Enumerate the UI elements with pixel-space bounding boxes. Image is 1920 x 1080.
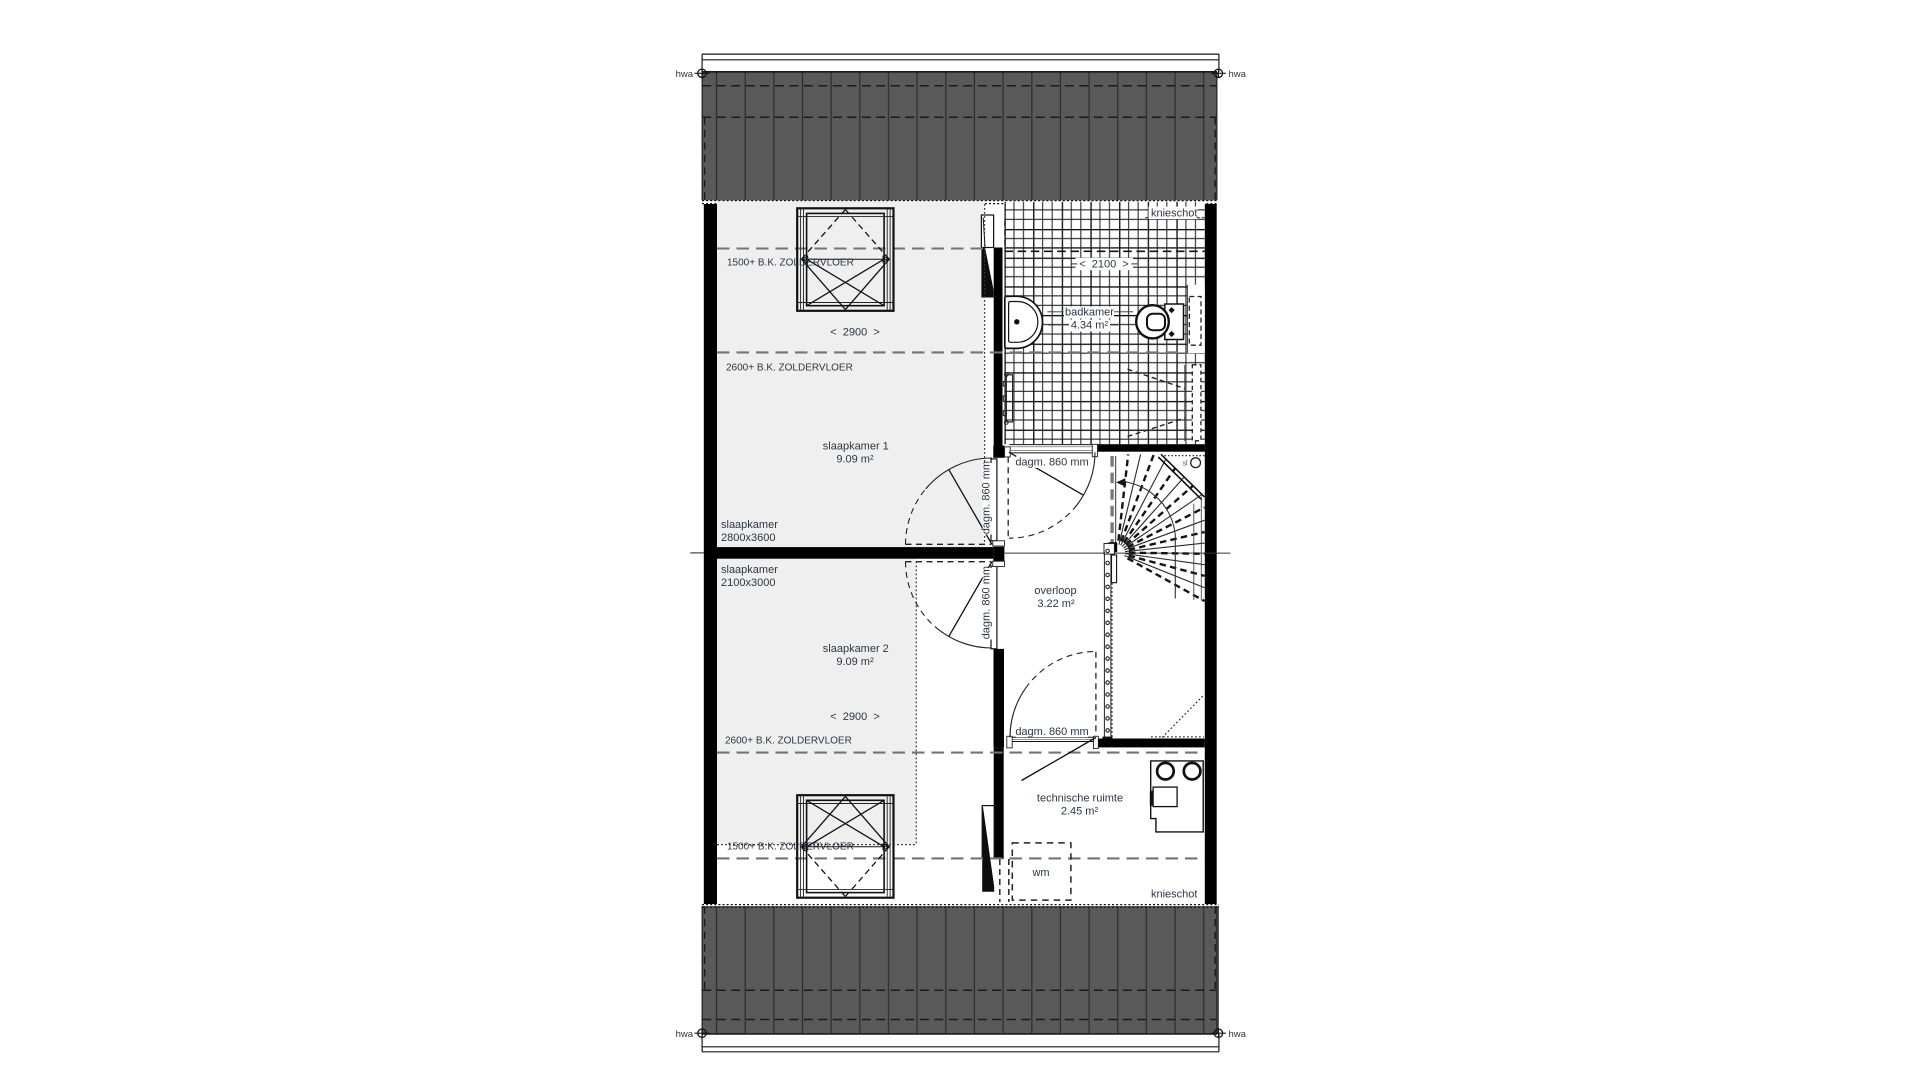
- svg-text:1500+ B.K. ZOLDERVLOER: 1500+ B.K. ZOLDERVLOER: [727, 258, 854, 269]
- svg-text:2100x3000: 2100x3000: [721, 577, 775, 589]
- svg-text:1500+ B.K. ZOLDERVLOER: 1500+ B.K. ZOLDERVLOER: [727, 842, 854, 853]
- svg-text:badkamer: badkamer: [1065, 306, 1114, 318]
- svg-text:slaapkamer: slaapkamer: [721, 564, 778, 576]
- svg-text:slaapkamer 1: slaapkamer 1: [823, 440, 889, 452]
- svg-text:dagm. 860 mm: dagm. 860 mm: [981, 461, 993, 534]
- svg-text:knieschot: knieschot: [1151, 889, 1197, 901]
- svg-text:< 2900 >: < 2900 >: [830, 326, 880, 338]
- svg-text:3.22 m²: 3.22 m²: [1037, 598, 1075, 610]
- svg-text:9.09 m²: 9.09 m²: [836, 656, 874, 668]
- svg-text:2.45 m²: 2.45 m²: [1061, 806, 1099, 818]
- svg-text:9.09 m²: 9.09 m²: [836, 453, 874, 465]
- svg-text:4.34 m²: 4.34 m²: [1071, 319, 1109, 331]
- svg-text:2600+ B.K. ZOLDERVLOER: 2600+ B.K. ZOLDERVLOER: [725, 736, 852, 747]
- svg-text:slaapkamer: slaapkamer: [721, 519, 778, 531]
- svg-text:hwa: hwa: [1229, 69, 1247, 80]
- svg-text:wm: wm: [1031, 867, 1049, 879]
- svg-text:overloop: overloop: [1034, 585, 1076, 597]
- svg-text:dagm. 860 mm: dagm. 860 mm: [1015, 726, 1088, 738]
- svg-text:hwa: hwa: [676, 69, 694, 80]
- svg-text:< 2100 >: < 2100 >: [1079, 259, 1129, 271]
- svg-text:sl: sl: [1182, 461, 1188, 468]
- svg-text:hwa: hwa: [676, 1029, 694, 1040]
- svg-text:< 2900 >: < 2900 >: [830, 711, 880, 723]
- svg-text:technische ruimte: technische ruimte: [1037, 793, 1123, 805]
- svg-text:knieschot: knieschot: [1151, 208, 1197, 220]
- svg-text:2800x3600: 2800x3600: [721, 532, 775, 544]
- svg-text:hwa: hwa: [1229, 1029, 1247, 1040]
- svg-text:dagm. 860 mm: dagm. 860 mm: [1015, 456, 1088, 468]
- svg-text:dagm. 860 mm: dagm. 860 mm: [981, 566, 993, 639]
- svg-text:2600+ B.K. ZOLDERVLOER: 2600+ B.K. ZOLDERVLOER: [726, 363, 853, 374]
- svg-text:slaapkamer 2: slaapkamer 2: [823, 643, 889, 655]
